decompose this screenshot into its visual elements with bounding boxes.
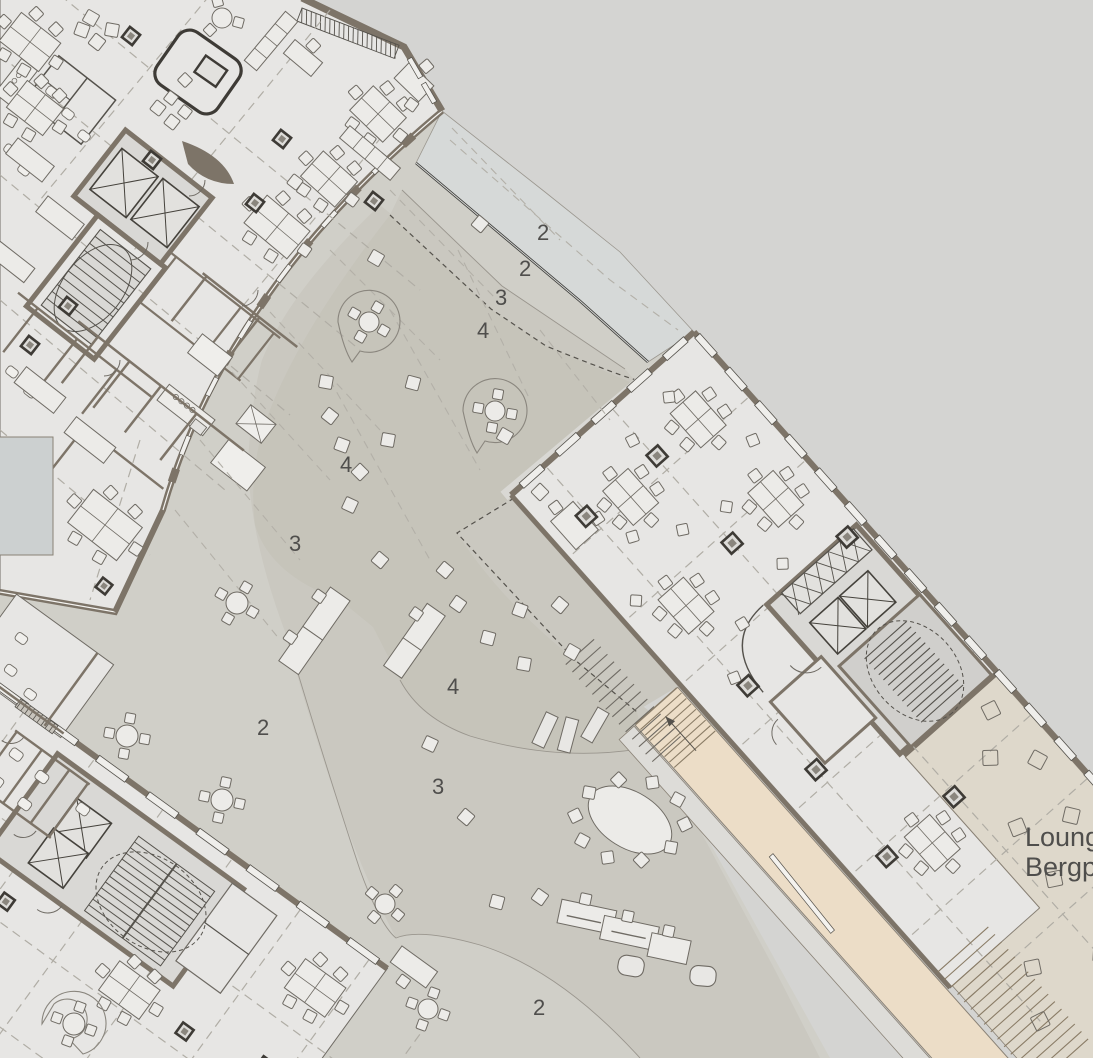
svg-text:4: 4 <box>477 318 489 343</box>
svg-text:2: 2 <box>533 995 545 1020</box>
svg-text:3: 3 <box>495 285 507 310</box>
svg-text:2: 2 <box>537 220 549 245</box>
svg-text:3: 3 <box>289 531 301 556</box>
svg-text:4: 4 <box>340 452 352 477</box>
svg-text:3: 3 <box>432 774 444 799</box>
svg-text:4: 4 <box>447 674 459 699</box>
svg-text:Lounge: Lounge <box>1025 822 1093 852</box>
svg-text:2: 2 <box>257 715 269 740</box>
svg-text:Bergpf: Bergpf <box>1025 852 1093 882</box>
svg-text:2: 2 <box>519 256 531 281</box>
